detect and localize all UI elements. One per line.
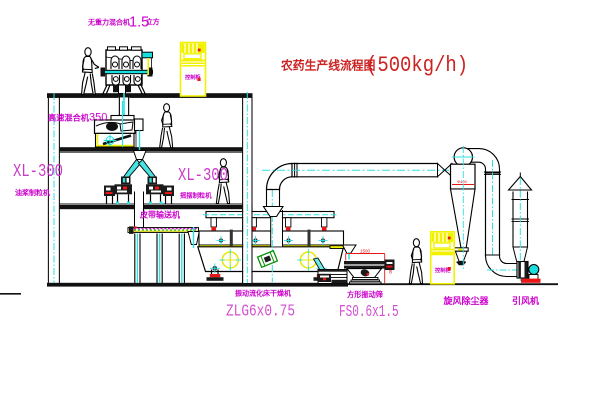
svg-text:皮带输送机: 皮带输送机 — [139, 210, 180, 220]
svg-text:旋风除尘器: 旋风除尘器 — [443, 295, 490, 306]
svg-text:农药生产线流程图: 农药生产线流程图 — [280, 59, 376, 73]
svg-text:FS0.6x1.5: FS0.6x1.5 — [339, 303, 399, 322]
svg-text:无重力混合机: 无重力混合机 — [87, 18, 130, 27]
svg-text:Φ400: Φ400 — [457, 179, 468, 184]
svg-text:方形振动筛: 方形振动筛 — [347, 290, 383, 299]
svg-text:(500kg/h): (500kg/h) — [366, 54, 468, 79]
svg-text:摇摆制粒机: 摇摆制粒机 — [180, 191, 212, 200]
svg-text:高速混合机350: 高速混合机350 — [48, 112, 107, 124]
svg-text:ZLG6x0.75: ZLG6x0.75 — [226, 303, 295, 321]
svg-text:XL-300: XL-300 — [13, 160, 63, 181]
svg-text:振动流化床干燥机: 振动流化床干燥机 — [235, 289, 291, 298]
svg-text:1500: 1500 — [360, 249, 371, 254]
svg-text:立方: 立方 — [146, 17, 160, 26]
svg-text:油桨制粒机: 油桨制粒机 — [15, 188, 50, 197]
svg-text:引风机: 引风机 — [512, 295, 539, 306]
svg-text:XL-300: XL-300 — [178, 164, 228, 185]
